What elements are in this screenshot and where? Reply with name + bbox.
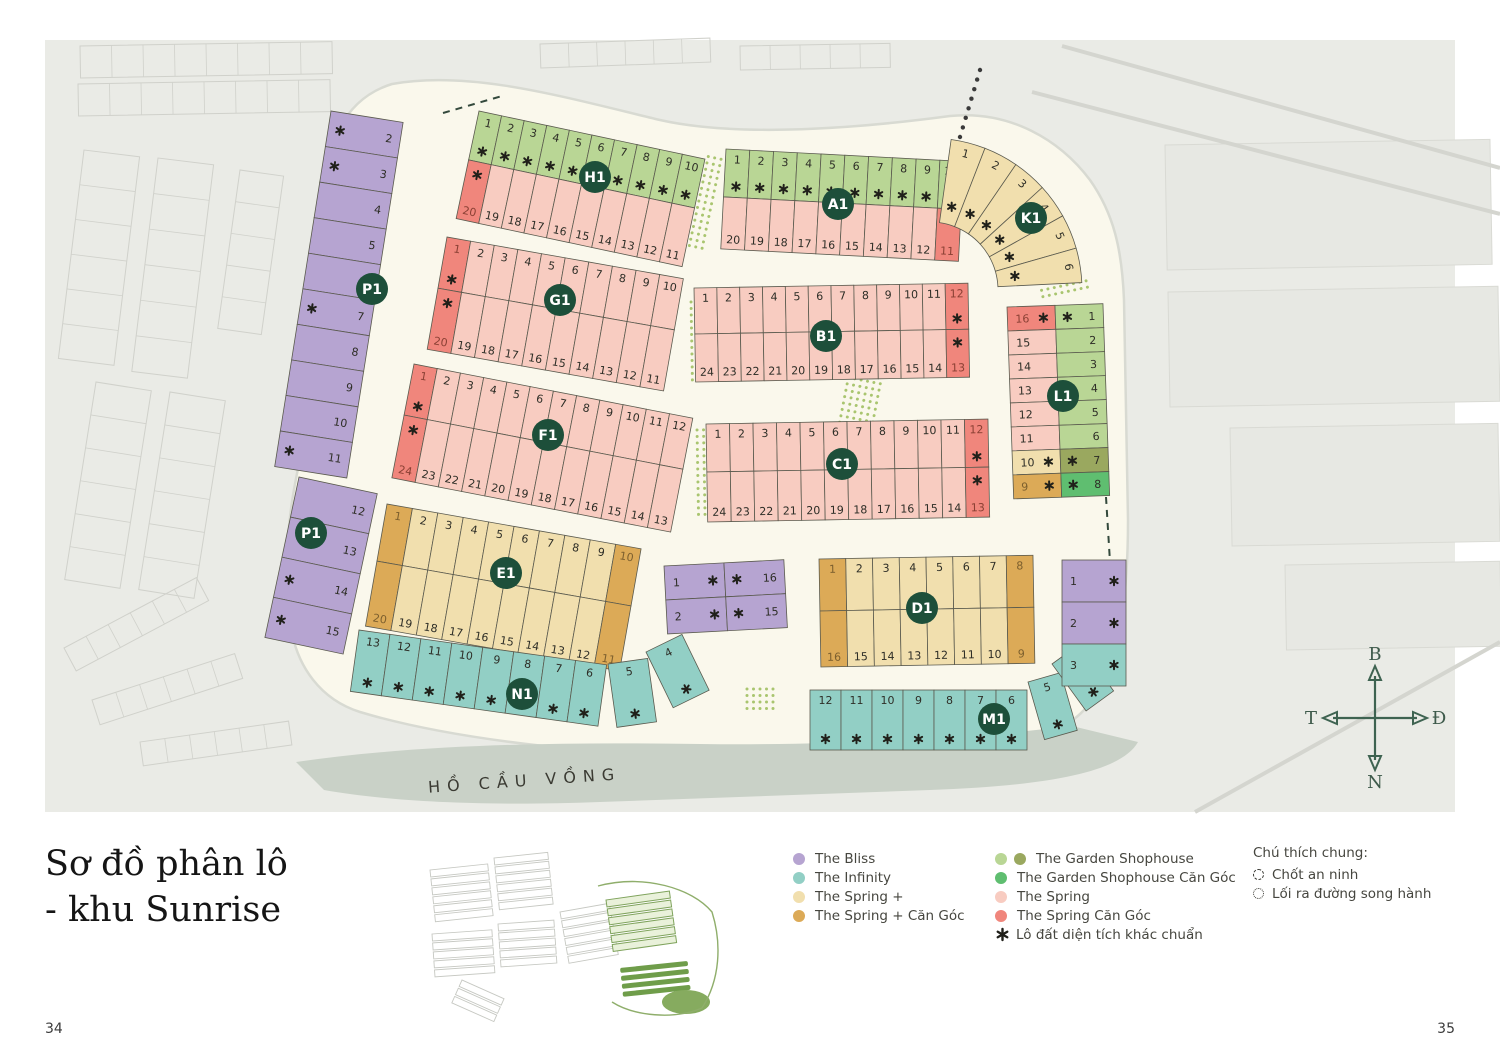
svg-text:13: 13 bbox=[951, 361, 965, 374]
svg-text:T: T bbox=[1305, 708, 1317, 729]
svg-text:18: 18 bbox=[537, 490, 553, 505]
inset-overview-map bbox=[428, 848, 728, 1023]
svg-text:8: 8 bbox=[879, 425, 886, 438]
lot-L1-8 bbox=[1061, 472, 1110, 498]
legend-column-general: Chú thích chung:Chốt an ninhLối ra đường… bbox=[1253, 845, 1431, 903]
svg-text:H1: H1 bbox=[584, 170, 605, 186]
svg-text:19: 19 bbox=[830, 504, 844, 517]
svg-text:3: 3 bbox=[1090, 358, 1097, 371]
svg-text:12: 12 bbox=[969, 423, 983, 436]
svg-text:11: 11 bbox=[927, 288, 941, 301]
svg-text:7: 7 bbox=[977, 694, 984, 707]
svg-text:24: 24 bbox=[712, 506, 726, 519]
svg-text:P1: P1 bbox=[362, 282, 382, 298]
svg-text:14: 14 bbox=[524, 638, 540, 653]
svg-text:2: 2 bbox=[725, 291, 732, 304]
svg-text:10: 10 bbox=[332, 415, 348, 430]
svg-text:15: 15 bbox=[499, 634, 515, 649]
legend-color-dot bbox=[793, 891, 805, 903]
svg-text:7: 7 bbox=[839, 289, 846, 302]
svg-text:16: 16 bbox=[821, 238, 836, 252]
svg-text:2: 2 bbox=[674, 610, 682, 623]
svg-text:2: 2 bbox=[757, 155, 765, 168]
brochure-page: HỒ CẦU VỒNG12345678910201918171615141312… bbox=[0, 0, 1500, 1059]
legend-note: Lô đất diện tích khác chuẩn bbox=[995, 925, 1236, 944]
svg-text:18: 18 bbox=[773, 236, 788, 250]
legend-label: The Garden Shophouse Căn Góc bbox=[1017, 870, 1236, 886]
svg-text:16: 16 bbox=[473, 629, 489, 644]
asterisk-icon bbox=[995, 927, 1010, 942]
svg-text:6: 6 bbox=[1008, 694, 1015, 707]
svg-text:1: 1 bbox=[1088, 310, 1095, 323]
svg-text:11: 11 bbox=[427, 644, 443, 659]
legend-label: The Spring + Căn Góc bbox=[815, 908, 965, 924]
svg-text:7: 7 bbox=[1093, 454, 1100, 467]
svg-text:A1: A1 bbox=[828, 197, 849, 213]
svg-text:23: 23 bbox=[420, 468, 436, 483]
svg-text:8: 8 bbox=[1016, 559, 1023, 572]
svg-text:1: 1 bbox=[673, 576, 681, 589]
svg-text:19: 19 bbox=[456, 339, 472, 354]
legend-item: The Spring bbox=[995, 887, 1236, 906]
svg-text:17: 17 bbox=[504, 347, 520, 362]
legend-label: The Spring bbox=[1017, 889, 1090, 905]
svg-text:22: 22 bbox=[759, 505, 773, 518]
svg-text:1: 1 bbox=[714, 428, 721, 441]
svg-text:21: 21 bbox=[768, 364, 782, 377]
svg-text:3: 3 bbox=[1070, 659, 1077, 672]
svg-text:19: 19 bbox=[814, 364, 828, 377]
svg-text:Đ: Đ bbox=[1432, 708, 1447, 729]
lot-L1-2 bbox=[1056, 328, 1105, 354]
svg-text:19: 19 bbox=[513, 486, 529, 501]
legend-color-dot bbox=[1014, 853, 1026, 865]
svg-text:N1: N1 bbox=[511, 687, 532, 703]
svg-text:10: 10 bbox=[662, 279, 678, 294]
svg-text:12: 12 bbox=[575, 647, 591, 662]
svg-text:6: 6 bbox=[1092, 430, 1099, 443]
svg-text:19: 19 bbox=[750, 234, 765, 248]
svg-text:11: 11 bbox=[946, 424, 960, 437]
lot-L1-16 bbox=[1007, 305, 1056, 331]
svg-text:N: N bbox=[1367, 772, 1383, 793]
svg-text:7: 7 bbox=[989, 560, 996, 573]
svg-text:20: 20 bbox=[806, 504, 820, 517]
svg-text:16: 16 bbox=[527, 351, 543, 366]
svg-text:P1: P1 bbox=[301, 526, 321, 542]
svg-text:22: 22 bbox=[444, 472, 460, 487]
legend-general-item: Chốt an ninh bbox=[1253, 865, 1431, 884]
svg-text:11: 11 bbox=[327, 451, 343, 466]
svg-text:15: 15 bbox=[1016, 336, 1030, 349]
svg-text:2: 2 bbox=[738, 427, 745, 440]
svg-text:D1: D1 bbox=[911, 601, 932, 617]
svg-text:11: 11 bbox=[850, 694, 864, 707]
svg-text:12: 12 bbox=[622, 368, 638, 383]
legend-label: The Bliss bbox=[815, 851, 875, 867]
svg-text:10: 10 bbox=[922, 424, 936, 437]
svg-text:4: 4 bbox=[770, 291, 777, 304]
svg-text:4: 4 bbox=[805, 157, 813, 170]
svg-text:10: 10 bbox=[458, 648, 474, 663]
legend-item: The Garden Shophouse bbox=[995, 849, 1236, 868]
svg-text:22: 22 bbox=[745, 365, 759, 378]
svg-text:11: 11 bbox=[648, 414, 664, 429]
svg-text:20: 20 bbox=[726, 233, 741, 247]
inset-plot-rows bbox=[498, 920, 557, 967]
svg-text:G1: G1 bbox=[549, 293, 570, 309]
lot-L1-9 bbox=[1013, 473, 1062, 499]
legend-label: Chốt an ninh bbox=[1272, 867, 1358, 883]
lot-L1-10 bbox=[1012, 449, 1061, 475]
svg-text:10: 10 bbox=[904, 288, 918, 301]
legend-label: The Spring + bbox=[815, 889, 904, 905]
svg-text:21: 21 bbox=[467, 477, 483, 492]
legend-color-dot bbox=[995, 872, 1007, 884]
svg-text:6: 6 bbox=[852, 160, 860, 173]
svg-text:5: 5 bbox=[793, 290, 800, 303]
svg-text:5: 5 bbox=[936, 561, 943, 574]
svg-text:7: 7 bbox=[876, 161, 884, 174]
svg-text:9: 9 bbox=[1021, 480, 1028, 493]
svg-text:12: 12 bbox=[819, 694, 833, 707]
lot-L1-1 bbox=[1055, 304, 1104, 330]
svg-text:2: 2 bbox=[1070, 617, 1077, 630]
svg-text:14: 14 bbox=[947, 502, 961, 515]
legend-color-dot bbox=[793, 853, 805, 865]
svg-text:24: 24 bbox=[700, 366, 714, 379]
legend-label: The Garden Shophouse bbox=[1036, 851, 1194, 867]
svg-text:11: 11 bbox=[1019, 432, 1033, 445]
svg-text:13: 13 bbox=[1018, 384, 1032, 397]
svg-text:8: 8 bbox=[900, 162, 908, 175]
legend-column-2: The Garden ShophouseThe Garden Shophouse… bbox=[995, 849, 1236, 944]
page-number-left: 34 bbox=[45, 1021, 63, 1037]
svg-text:1: 1 bbox=[829, 563, 836, 576]
svg-text:5: 5 bbox=[808, 426, 815, 439]
svg-text:18: 18 bbox=[853, 503, 867, 516]
svg-text:16: 16 bbox=[827, 651, 841, 664]
svg-text:12: 12 bbox=[1019, 408, 1033, 421]
svg-text:2: 2 bbox=[856, 562, 863, 575]
svg-text:C1: C1 bbox=[832, 457, 852, 473]
svg-text:3: 3 bbox=[748, 291, 755, 304]
svg-text:11: 11 bbox=[940, 244, 955, 258]
svg-text:8: 8 bbox=[1094, 478, 1101, 491]
svg-text:17: 17 bbox=[860, 363, 874, 376]
svg-text:15: 15 bbox=[764, 605, 779, 619]
svg-text:14: 14 bbox=[1017, 360, 1031, 373]
svg-text:13: 13 bbox=[365, 635, 381, 650]
svg-text:10: 10 bbox=[1020, 456, 1034, 469]
svg-text:9: 9 bbox=[915, 694, 922, 707]
svg-text:1: 1 bbox=[733, 153, 741, 166]
svg-text:3: 3 bbox=[882, 562, 889, 575]
lot-L1-11 bbox=[1011, 425, 1060, 451]
block-bliss-mid: 121615 bbox=[664, 560, 787, 634]
svg-text:14: 14 bbox=[868, 241, 883, 255]
lot-L1-3 bbox=[1057, 352, 1106, 378]
legend-color-dot bbox=[995, 910, 1007, 922]
svg-text:15: 15 bbox=[924, 502, 938, 515]
svg-text:2: 2 bbox=[1089, 334, 1096, 347]
svg-text:14: 14 bbox=[574, 359, 590, 374]
svg-text:11: 11 bbox=[645, 372, 661, 387]
lot-L1-6 bbox=[1059, 424, 1108, 450]
page-title: Sơ đồ phân lô - khu Sunrise bbox=[45, 842, 288, 933]
svg-text:9: 9 bbox=[902, 424, 909, 437]
svg-text:15: 15 bbox=[854, 650, 868, 663]
svg-text:15: 15 bbox=[845, 239, 860, 253]
svg-text:5: 5 bbox=[829, 158, 837, 171]
svg-text:10: 10 bbox=[987, 648, 1001, 661]
svg-text:14: 14 bbox=[928, 362, 942, 375]
svg-text:4: 4 bbox=[909, 561, 916, 574]
svg-text:18: 18 bbox=[837, 363, 851, 376]
legend-item: The Spring Căn Góc bbox=[995, 906, 1236, 925]
legend-color-dot bbox=[793, 872, 805, 884]
legend-color-dot bbox=[995, 891, 1007, 903]
svg-text:8: 8 bbox=[862, 289, 869, 302]
legend-note-label: Lô đất diện tích khác chuẩn bbox=[1016, 927, 1203, 943]
svg-text:M1: M1 bbox=[982, 712, 1006, 728]
svg-text:12: 12 bbox=[916, 243, 931, 257]
svg-text:8: 8 bbox=[946, 694, 953, 707]
svg-text:13: 13 bbox=[550, 643, 566, 658]
svg-text:9: 9 bbox=[885, 289, 892, 302]
svg-text:11: 11 bbox=[961, 648, 975, 661]
inset-plot-rows bbox=[494, 852, 553, 909]
svg-text:3: 3 bbox=[761, 427, 768, 440]
svg-text:20: 20 bbox=[372, 611, 388, 626]
legend-general-item: Lối ra đường song hành bbox=[1253, 884, 1431, 903]
svg-text:13: 13 bbox=[653, 513, 669, 528]
svg-text:1: 1 bbox=[702, 292, 709, 305]
svg-text:15: 15 bbox=[606, 504, 622, 519]
svg-text:9: 9 bbox=[1018, 647, 1025, 660]
svg-text:19: 19 bbox=[397, 616, 413, 631]
svg-text:E1: E1 bbox=[496, 566, 515, 582]
lot-L1-7 bbox=[1060, 448, 1109, 474]
svg-text:10: 10 bbox=[881, 694, 895, 707]
inset-highlight-blob bbox=[662, 990, 710, 1014]
legend-item: The Bliss bbox=[793, 849, 965, 868]
page-title-line2: - khu Sunrise bbox=[45, 888, 288, 934]
dashed-circle bbox=[1253, 869, 1264, 880]
svg-text:F1: F1 bbox=[538, 428, 557, 444]
svg-text:4: 4 bbox=[1091, 382, 1098, 395]
legend-label: Lối ra đường song hành bbox=[1272, 886, 1431, 902]
svg-text:4: 4 bbox=[785, 427, 792, 440]
svg-text:16: 16 bbox=[1015, 312, 1029, 325]
svg-text:6: 6 bbox=[816, 290, 823, 303]
svg-text:24: 24 bbox=[397, 463, 413, 478]
svg-text:16: 16 bbox=[762, 571, 777, 585]
svg-text:13: 13 bbox=[971, 501, 985, 514]
svg-text:12: 12 bbox=[950, 287, 964, 300]
svg-text:15: 15 bbox=[551, 355, 567, 370]
legend-general-title: Chú thích chung: bbox=[1253, 845, 1431, 864]
inset-plot-rows bbox=[452, 980, 504, 1022]
legend-item: The Garden Shophouse Căn Góc bbox=[995, 868, 1236, 887]
legend-column-1: The BlissThe InfinityThe Spring +The Spr… bbox=[793, 849, 965, 925]
lot-L1-14 bbox=[1009, 353, 1058, 379]
page-title-line1: Sơ đồ phân lô bbox=[45, 842, 288, 888]
svg-text:16: 16 bbox=[583, 499, 599, 514]
inset-plot-rows bbox=[430, 864, 493, 922]
block-M1-right: 123 bbox=[1062, 560, 1126, 686]
svg-text:12: 12 bbox=[396, 640, 412, 655]
legend-item: The Spring + Căn Góc bbox=[793, 906, 965, 925]
svg-text:6: 6 bbox=[832, 426, 839, 439]
asterisk-marker bbox=[998, 929, 1008, 940]
legend-item: The Infinity bbox=[793, 868, 965, 887]
svg-text:15: 15 bbox=[905, 362, 919, 375]
svg-text:9: 9 bbox=[924, 163, 932, 176]
svg-text:17: 17 bbox=[448, 625, 464, 640]
svg-text:10: 10 bbox=[619, 549, 635, 564]
legend-color-dot bbox=[793, 910, 805, 922]
svg-text:17: 17 bbox=[560, 495, 576, 510]
inset-highlight-rows bbox=[606, 891, 677, 951]
svg-text:1: 1 bbox=[1070, 575, 1077, 588]
svg-text:18: 18 bbox=[423, 620, 439, 635]
svg-text:12: 12 bbox=[934, 649, 948, 662]
svg-text:B1: B1 bbox=[816, 329, 836, 345]
svg-text:B: B bbox=[1368, 644, 1381, 665]
svg-text:10: 10 bbox=[625, 409, 641, 424]
svg-text:5: 5 bbox=[1092, 406, 1099, 419]
page-number-right: 35 bbox=[1437, 1021, 1455, 1037]
svg-text:17: 17 bbox=[877, 503, 891, 516]
svg-text:18: 18 bbox=[480, 343, 496, 358]
inset-plot-rows bbox=[432, 930, 495, 977]
svg-text:7: 7 bbox=[855, 425, 862, 438]
svg-text:13: 13 bbox=[907, 649, 921, 662]
svg-text:12: 12 bbox=[671, 419, 687, 434]
svg-text:13: 13 bbox=[598, 364, 614, 379]
svg-text:16: 16 bbox=[900, 502, 914, 515]
svg-text:6: 6 bbox=[963, 560, 970, 573]
svg-text:20: 20 bbox=[490, 481, 506, 496]
svg-text:16: 16 bbox=[882, 362, 896, 375]
block-N1-5: 5 bbox=[608, 658, 657, 727]
svg-text:20: 20 bbox=[433, 334, 449, 349]
legend-item: The Spring + bbox=[793, 887, 965, 906]
lot-L1-15 bbox=[1008, 329, 1057, 355]
svg-text:14: 14 bbox=[880, 650, 894, 663]
legend-label: The Infinity bbox=[815, 870, 891, 886]
svg-text:23: 23 bbox=[723, 365, 737, 378]
svg-text:23: 23 bbox=[736, 505, 750, 518]
svg-text:17: 17 bbox=[797, 237, 812, 251]
svg-text:13: 13 bbox=[892, 242, 907, 256]
legend-label: The Spring Căn Góc bbox=[1017, 908, 1151, 924]
svg-text:3: 3 bbox=[781, 156, 789, 169]
svg-text:L1: L1 bbox=[1054, 389, 1073, 405]
svg-text:20: 20 bbox=[791, 364, 805, 377]
svg-text:K1: K1 bbox=[1021, 211, 1042, 227]
legend-color-dot bbox=[995, 853, 1007, 865]
svg-text:21: 21 bbox=[783, 504, 797, 517]
svg-text:14: 14 bbox=[630, 508, 646, 523]
dotted-circle bbox=[1253, 888, 1264, 899]
